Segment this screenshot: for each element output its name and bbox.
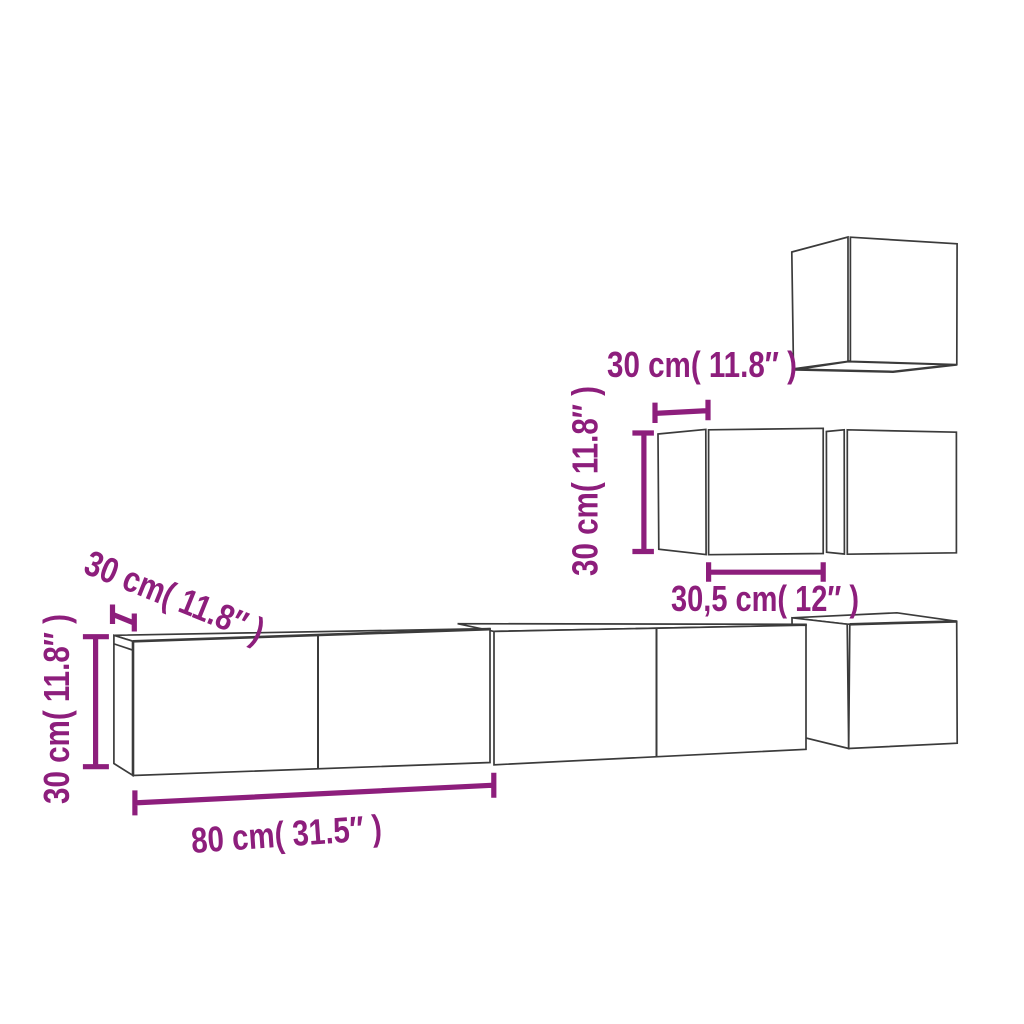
svg-text:30 cm( 11.8″ ): 30 cm( 11.8″ ) bbox=[565, 386, 606, 576]
svg-text:30 cm( 11.8″ ): 30 cm( 11.8″ ) bbox=[36, 614, 77, 804]
svg-text:30 cm( 11.8″ ): 30 cm( 11.8″ ) bbox=[607, 344, 797, 385]
svg-text:30,5 cm( 12″ ): 30,5 cm( 12″ ) bbox=[671, 578, 859, 619]
